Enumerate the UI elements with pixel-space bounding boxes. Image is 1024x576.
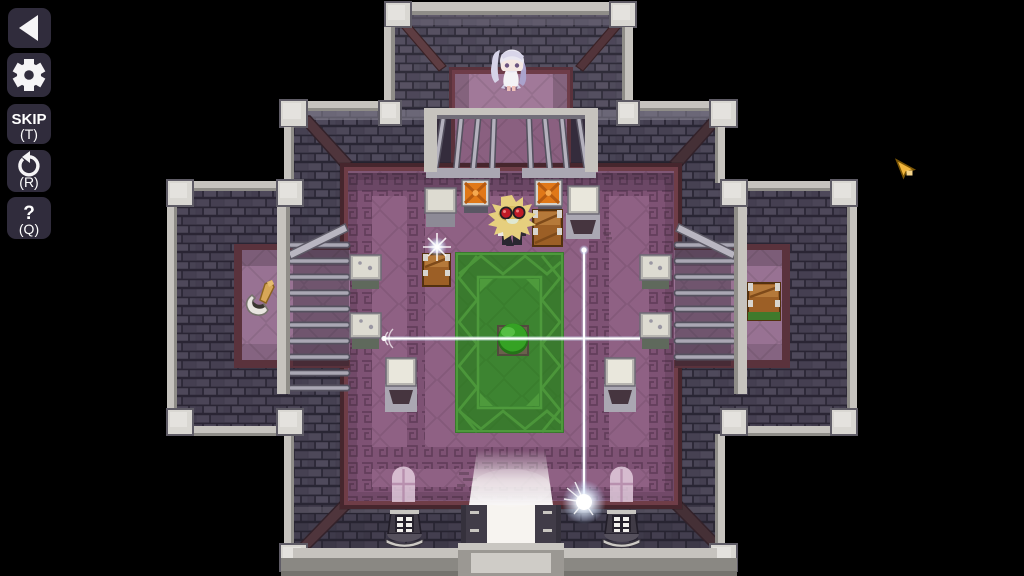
svg-text:(R): (R) (19, 174, 38, 190)
svg-text:(T): (T) (20, 126, 38, 142)
svg-text:(Q): (Q) (19, 221, 39, 237)
